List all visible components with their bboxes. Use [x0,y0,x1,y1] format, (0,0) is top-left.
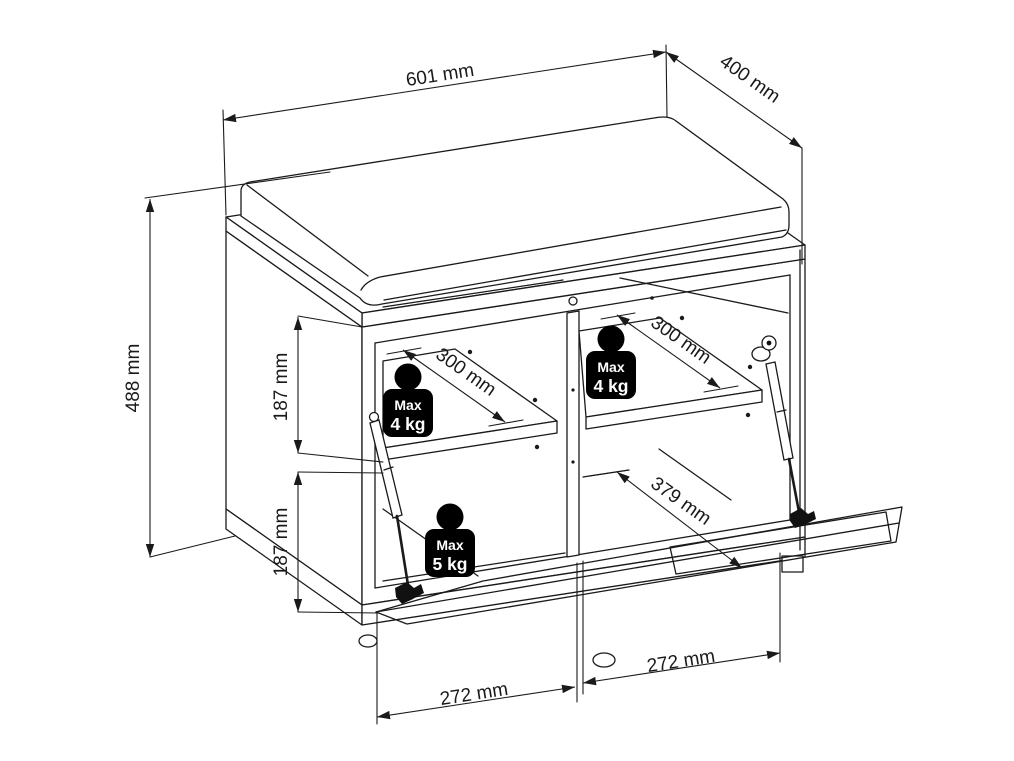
fitting-dot [535,445,539,449]
label-top-depth: 400 mm [716,51,784,108]
weight-icon-head [598,326,625,353]
fitting-dot [468,350,472,354]
fitting-dot [571,460,574,463]
label-bottom-left-width: 272 mm [439,679,510,710]
ext-top-width-left [223,110,226,215]
badge-max-label: Max [597,359,624,375]
label-bottom-right-width: 272 mm [646,646,717,677]
fitting-dot [746,413,750,417]
technical-drawing-canvas: 601 mm 400 mm 488 mm 187 mm 187 mm 300 m… [0,0,1014,761]
fitting-dot [748,365,752,369]
fitting-dot [533,398,537,402]
label-upper-compartment-height: 187 mm [271,353,292,422]
strut-right-ball-pin [767,341,772,346]
ext-height-bottom [150,536,235,557]
shoe-bench-diagram: 601 mm 400 mm 488 mm 187 mm 187 mm 300 m… [0,0,1014,761]
badge-max-value: 4 kg [390,414,425,434]
label-overall-height: 488 mm [123,344,144,413]
badge-max-value: 5 kg [432,554,467,574]
center-foot [593,653,615,667]
fitting-dot [650,296,654,300]
center-divider-front-edge [567,311,579,557]
badge-max-label: Max [394,397,421,413]
fitting-dot [571,388,574,391]
badge-max-label: Max [436,537,463,553]
dim-top-width [223,52,666,120]
divider-hinge-hole [569,297,577,305]
ext-top-width-right [666,45,667,117]
left-foot [359,635,377,647]
weight-icon-head [437,504,464,531]
label-lower-compartment-height: 187 mm [271,508,292,577]
badge-max-value: 4 kg [593,376,628,396]
fitting-dot [680,316,684,320]
weight-icon-head [395,364,422,391]
